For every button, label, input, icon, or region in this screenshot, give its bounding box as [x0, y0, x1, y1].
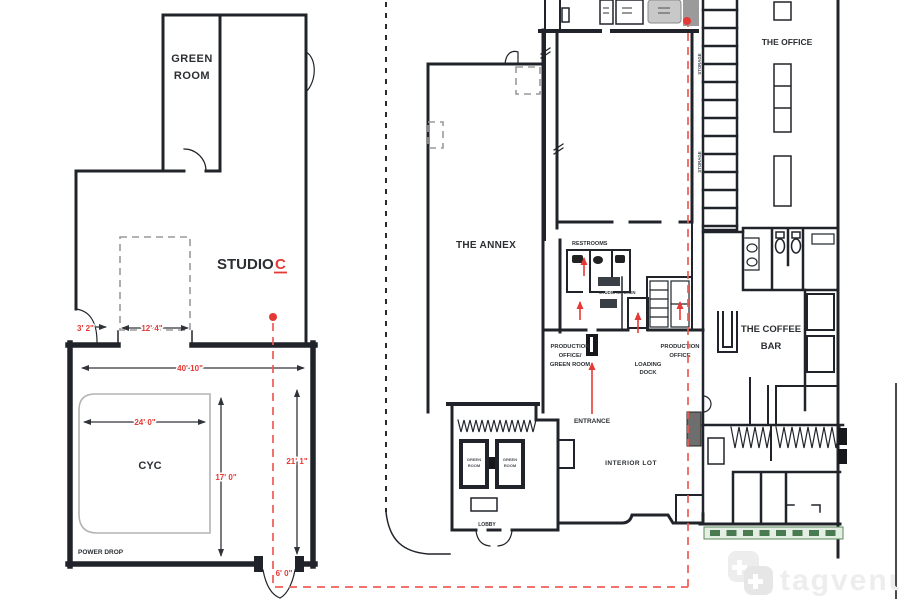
studio-dashed-zone — [120, 237, 190, 330]
top-fixture — [562, 8, 569, 22]
dim-right-label: 21' 1" — [286, 457, 307, 466]
table — [807, 294, 834, 330]
restrooms-label: RESTROOMS — [572, 241, 608, 247]
floor-plan-page: GREEN ROOM STUDIO C CYC POWER DROP 40' 1… — [0, 0, 899, 600]
floor-plan-drawing: GREEN ROOM STUDIO C CYC POWER DROP 40' 1… — [0, 0, 899, 600]
top-room-shaded — [648, 0, 681, 23]
studio-kitchen-label: STUDIO KITCHEN — [599, 290, 636, 295]
studio-c-title: STUDIO — [217, 256, 274, 273]
office-building: THE OFFICE THE COFFEE BAR — [700, 0, 896, 599]
green-room-b-label-2: ROOM — [504, 463, 517, 468]
hedge-strip — [704, 527, 843, 539]
sink-icon — [572, 255, 583, 263]
green-room-a-label-1: GREEN — [467, 457, 481, 462]
dim-door-label: 3' 2" — [77, 324, 94, 333]
lobby-desk — [471, 498, 497, 511]
top-room — [616, 0, 643, 24]
tagvenue-brand-text: tagvenue — [780, 564, 899, 597]
power-drop-label: POWER DROP — [78, 549, 124, 556]
camera-point — [269, 313, 277, 321]
annex-opening-hatch — [428, 122, 443, 148]
coffee-bar-label-1: THE COFFEE — [741, 324, 801, 335]
kitchen-counter — [598, 277, 620, 286]
table — [807, 336, 834, 372]
entrance-label: ENTRANCE — [574, 418, 611, 425]
cyc-label: CYC — [138, 460, 161, 472]
office-title: THE OFFICE — [762, 37, 813, 47]
office-desk — [774, 64, 791, 132]
lobby-label: LOBBY — [478, 522, 496, 528]
toilet-icon — [792, 239, 801, 253]
office-restrooms-block — [743, 228, 838, 290]
office-desk — [774, 2, 791, 20]
wardrobe-rack — [776, 427, 840, 448]
dim-cyc-depth-label: 17' 0" — [215, 473, 236, 482]
lobby-block — [448, 404, 574, 546]
annex-top-door — [505, 51, 518, 64]
toilet-icon — [776, 239, 785, 253]
loading-dock-label-1: LOADING — [635, 362, 662, 368]
prod-office-gr-label-1: PRODUCTION — [551, 344, 590, 350]
green-room-a-label-2: ROOM — [468, 463, 481, 468]
prod-office-label-1: PRODUCTION — [661, 344, 700, 350]
production-office-room — [647, 277, 692, 330]
top-room — [600, 0, 613, 24]
dimension-lines — [82, 327, 304, 556]
rack-sawtooth — [458, 420, 536, 432]
office-desk — [774, 156, 791, 206]
interior-lot-label: INTERIOR LOT — [605, 460, 657, 467]
coffee-bar-counter — [718, 312, 737, 352]
annex-opening-hatch — [516, 67, 540, 94]
loading-dock-label-2: DOCK — [639, 370, 657, 376]
toilet-icon — [792, 232, 800, 238]
studio-c-letter: C — [275, 256, 286, 273]
dim-cyc-width-label: 24' 0" — [134, 418, 155, 427]
exit-door-jamb — [254, 556, 263, 572]
exit-door-jamb — [295, 556, 304, 572]
green-room-label-line2: ROOM — [174, 70, 210, 82]
storage-label-1: STORAGE — [697, 53, 702, 74]
dock-door-hatch — [687, 412, 701, 446]
tagvenue-watermark: tagvenue — [728, 551, 899, 597]
storage-label-2: STORAGE — [697, 151, 702, 172]
sink-icon — [747, 244, 757, 252]
annex-building: THE ANNEX STORAGE STORAGE RESTROOMS STUD… — [386, 0, 711, 554]
annex-title: THE ANNEX — [456, 240, 516, 251]
green-room-label-line1: GREEN — [171, 53, 213, 65]
wardrobe-rack — [731, 427, 771, 448]
prod-office-gr-label-3: GREEN ROOM — [550, 362, 590, 368]
gate-swing-arc — [386, 512, 450, 554]
dim-exit-label: 6' 0" — [276, 569, 293, 578]
tagvenue-logo-icon — [728, 551, 773, 595]
dim-opening-label: 12' 4" — [141, 324, 162, 333]
kitchen-counter — [600, 299, 617, 308]
sightline-dashed — [273, 323, 688, 587]
green-room-b-label-1: GREEN — [503, 457, 517, 462]
toilet-icon — [776, 232, 784, 238]
toilet-icon — [593, 256, 603, 264]
camera-point — [683, 17, 691, 25]
stairs — [703, 10, 737, 226]
studio-c-building: GREEN ROOM STUDIO C CYC POWER DROP 40' 1… — [68, 15, 315, 598]
sink-icon — [747, 258, 757, 266]
dim-width-label: 40' 10" — [177, 364, 203, 373]
prod-office-gr-label-2: OFFICE/ — [559, 353, 582, 359]
green-room-door-arc — [184, 149, 206, 171]
sink-icon — [615, 255, 625, 263]
coffee-bar-label-2: BAR — [761, 341, 782, 352]
